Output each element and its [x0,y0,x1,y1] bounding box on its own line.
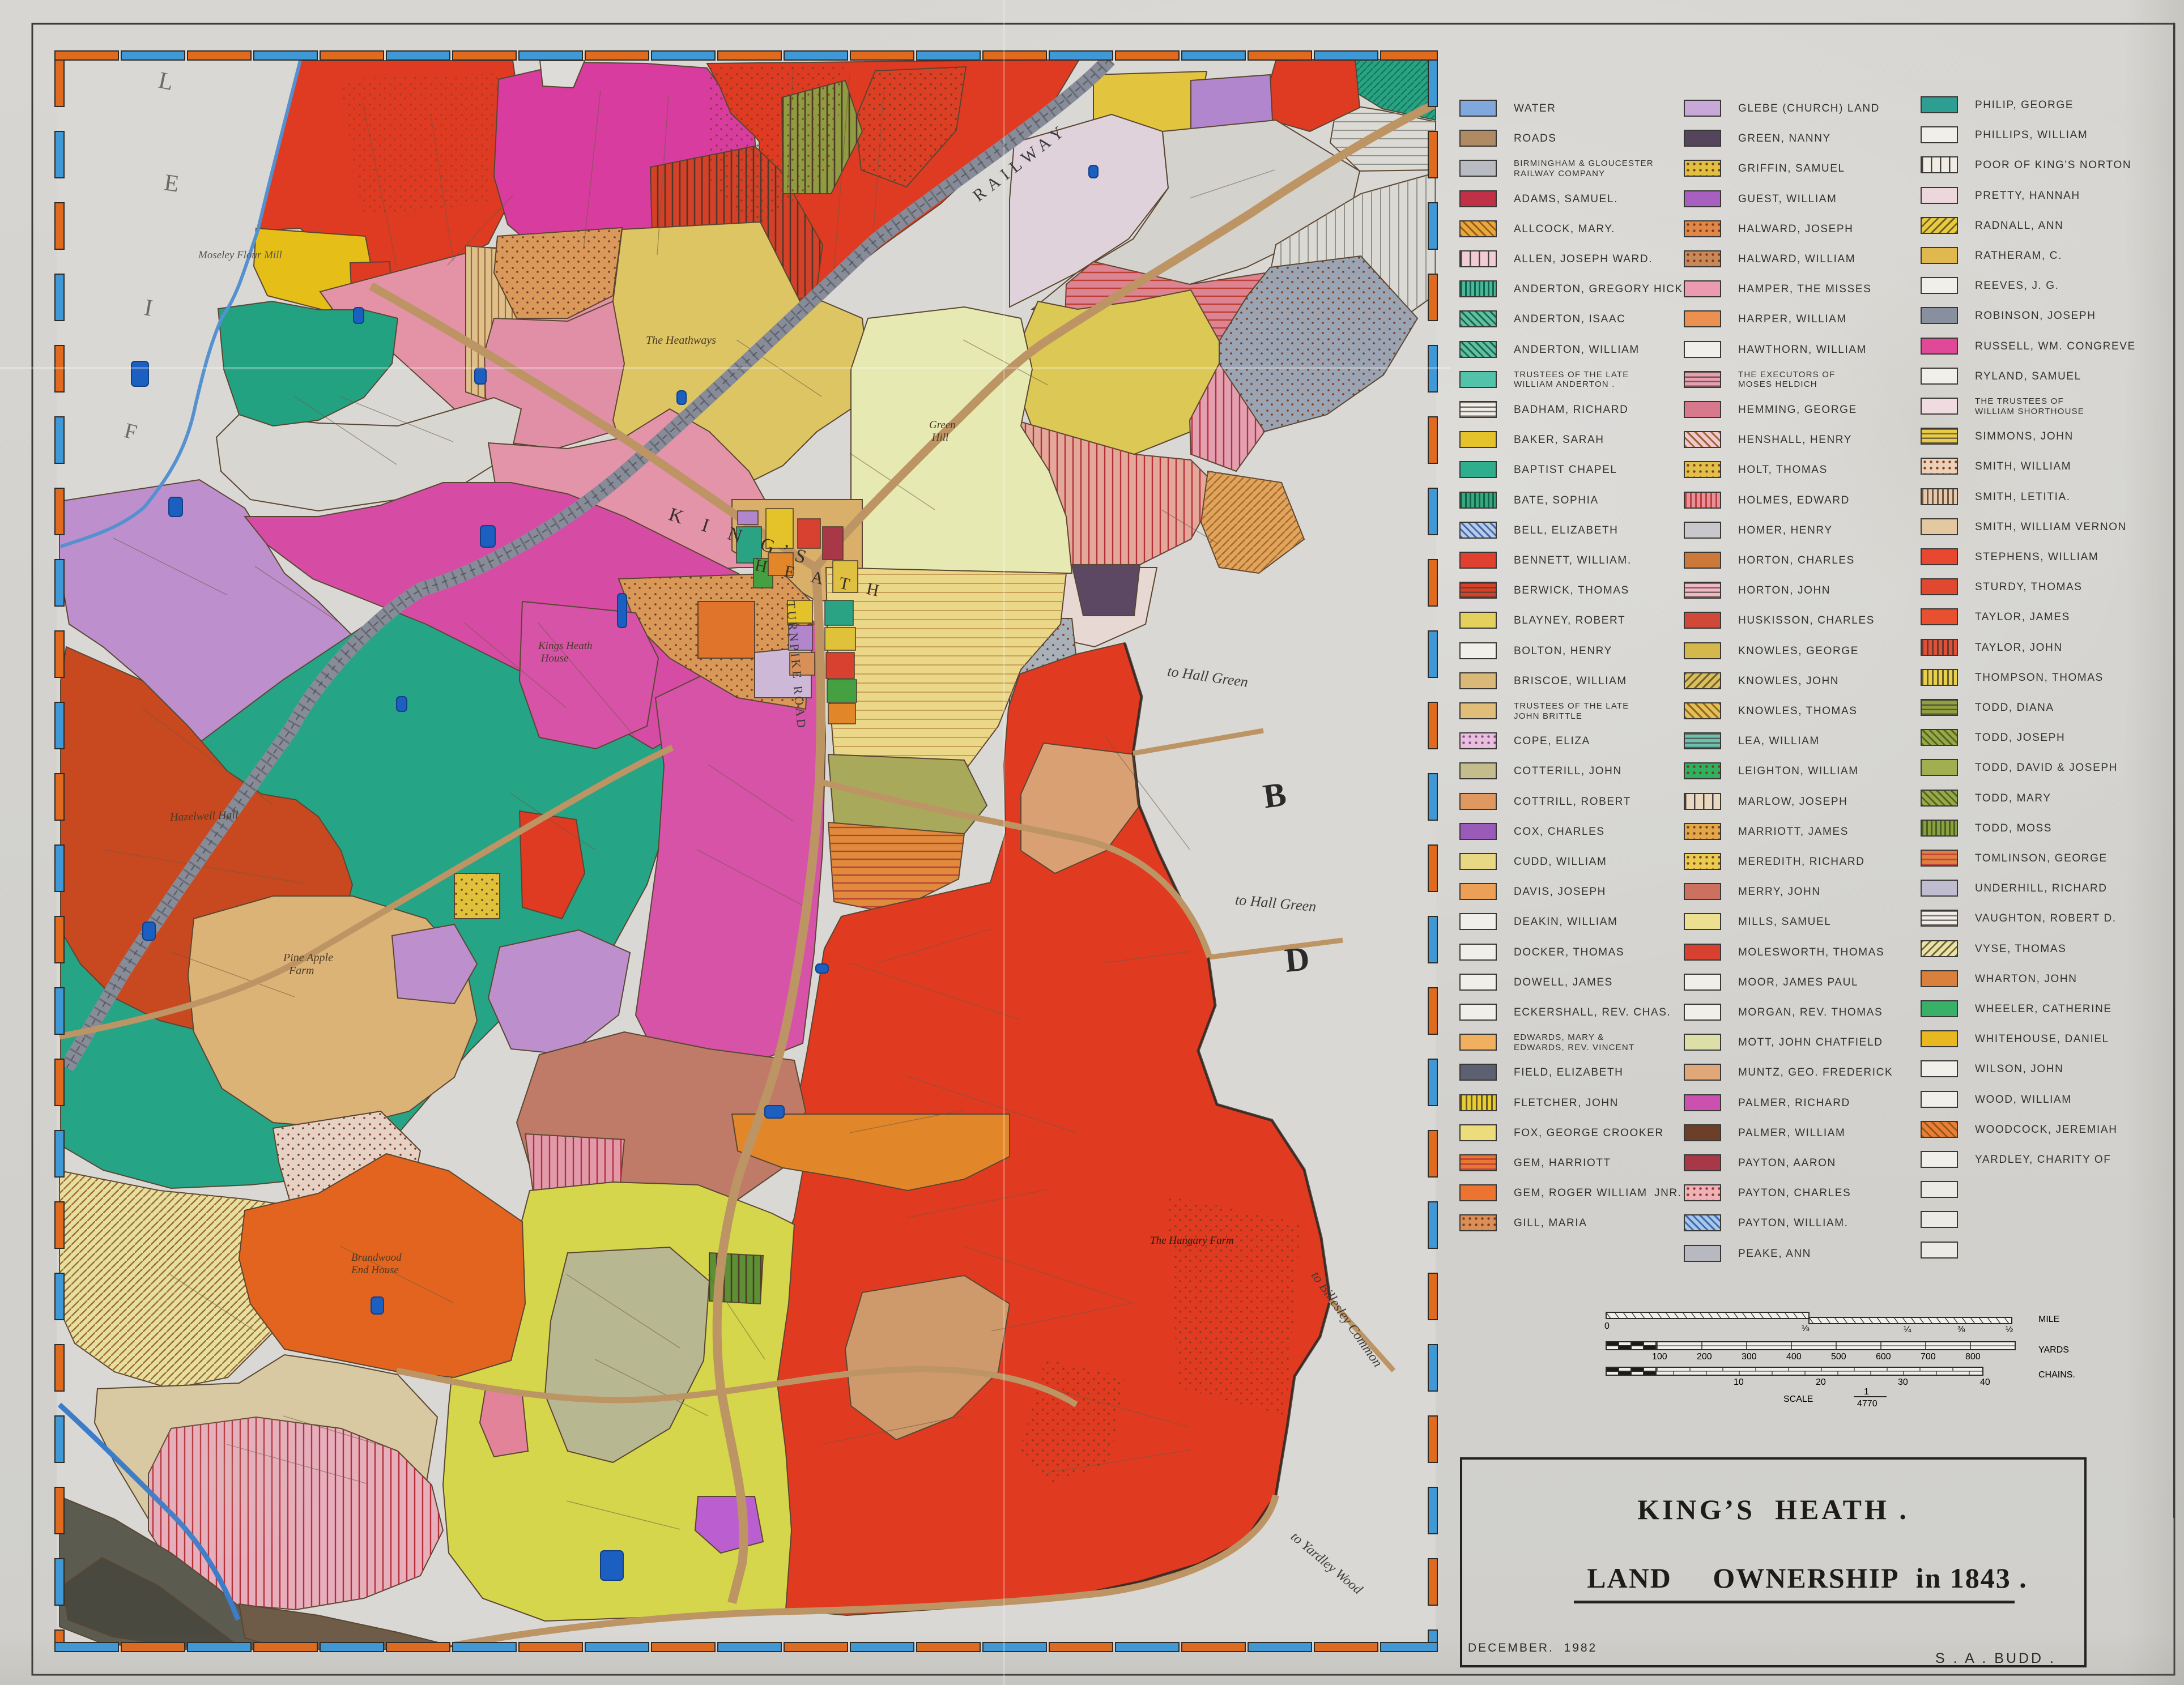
svg-text:YARDS: YARDS [2038,1345,2069,1355]
svg-text:1: 1 [1864,1387,1869,1397]
svg-text:½: ½ [2006,1325,2013,1334]
svg-text:400: 400 [1786,1352,1802,1362]
svg-text:500: 500 [1831,1352,1846,1362]
svg-text:4770: 4770 [1857,1399,1878,1409]
svg-text:0: 0 [1604,1321,1610,1331]
svg-text:⅛: ⅛ [1802,1324,1810,1333]
svg-text:⅜: ⅜ [1957,1325,1965,1334]
svg-text:40: 40 [1980,1377,1990,1387]
svg-text:MILE: MILE [2038,1315,2059,1324]
svg-text:700: 700 [1921,1352,1936,1362]
svg-text:10: 10 [1734,1377,1744,1387]
svg-text:200: 200 [1697,1352,1712,1362]
svg-text:20: 20 [1816,1377,1826,1387]
svg-text:800: 800 [1965,1352,1981,1362]
svg-text:SCALE: SCALE [1783,1394,1813,1404]
svg-text:100: 100 [1652,1352,1667,1362]
svg-text:600: 600 [1876,1352,1891,1362]
svg-text:CHAINS.: CHAINS. [2038,1370,2075,1380]
svg-text:30: 30 [1898,1377,1908,1387]
svg-text:¼: ¼ [1904,1325,1911,1334]
svg-text:300: 300 [1742,1352,1757,1362]
